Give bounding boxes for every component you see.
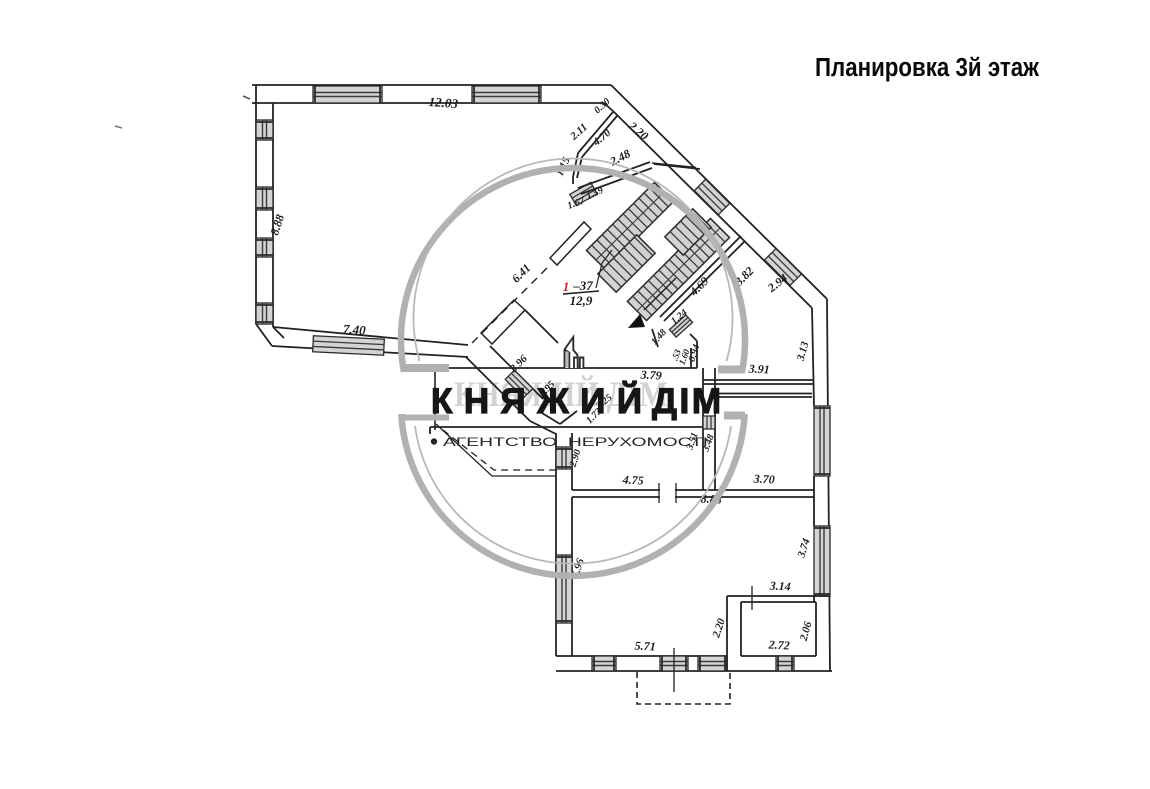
svg-text:7.40: 7.40 <box>342 321 366 338</box>
svg-text:Планировка 3й этаж: Планировка 3й этаж <box>815 54 1040 82</box>
svg-text:3.91: 3.91 <box>747 361 770 376</box>
svg-text:3.14: 3.14 <box>768 578 791 593</box>
svg-text:12,9: 12,9 <box>570 293 593 308</box>
svg-text:3.70: 3.70 <box>752 471 775 486</box>
svg-text:–37: –37 <box>572 278 593 293</box>
svg-text:2.72: 2.72 <box>767 637 790 652</box>
svg-text:ДІМ: ДІМ <box>652 382 721 421</box>
svg-text:12.03: 12.03 <box>428 94 459 111</box>
svg-text:3.79: 3.79 <box>639 367 662 382</box>
svg-text:АГЕНТСТВО НЕРУХОМОСТІ: АГЕНТСТВО НЕРУХОМОСТІ <box>443 435 708 449</box>
svg-text:1: 1 <box>563 279 570 294</box>
svg-text:4.75: 4.75 <box>621 472 644 487</box>
svg-text:5.71: 5.71 <box>634 638 656 653</box>
